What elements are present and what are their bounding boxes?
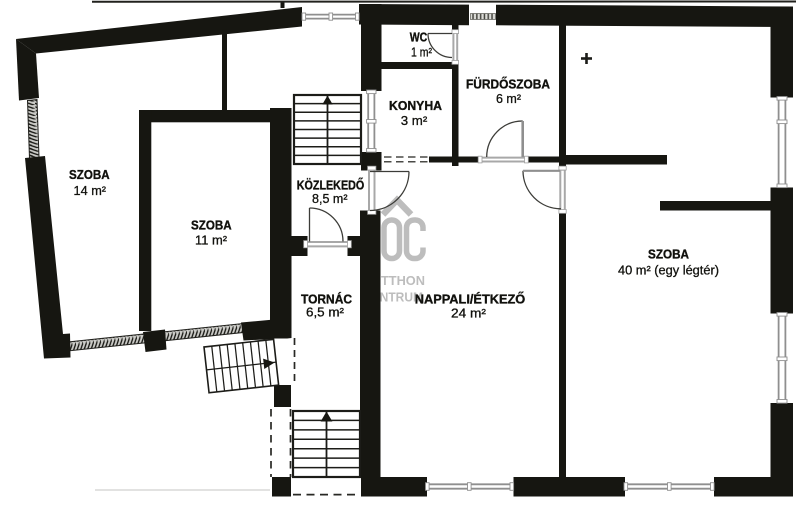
svg-text:8,5 m²: 8,5 m² [312, 192, 348, 206]
svg-text:TORNÁC: TORNÁC [301, 291, 352, 306]
svg-text:14 m²: 14 m² [74, 184, 107, 198]
svg-text:40 m² (egy légtér): 40 m² (egy légtér) [618, 264, 719, 278]
svg-text:1 m²: 1 m² [411, 46, 432, 60]
svg-text:6 m²: 6 m² [496, 92, 521, 106]
svg-text:NAPPALI/ÉTKEZŐ: NAPPALI/ÉTKEZŐ [415, 292, 526, 307]
svg-text:FÜRDŐSZOBA: FÜRDŐSZOBA [466, 77, 550, 92]
svg-text:WC: WC [410, 31, 428, 45]
svg-text:3 m²: 3 m² [401, 114, 428, 128]
svg-text:SZOBA: SZOBA [191, 219, 232, 233]
svg-text:SZOBA: SZOBA [69, 168, 110, 182]
svg-text:24 m²: 24 m² [451, 307, 486, 321]
svg-text:6,5 m²: 6,5 m² [306, 306, 344, 320]
svg-text:KONYHA: KONYHA [389, 99, 442, 113]
svg-text:SZOBA: SZOBA [648, 248, 689, 262]
svg-text:11 m²: 11 m² [195, 234, 227, 248]
svg-text:KÖZLEKEDŐ: KÖZLEKEDŐ [297, 178, 365, 193]
